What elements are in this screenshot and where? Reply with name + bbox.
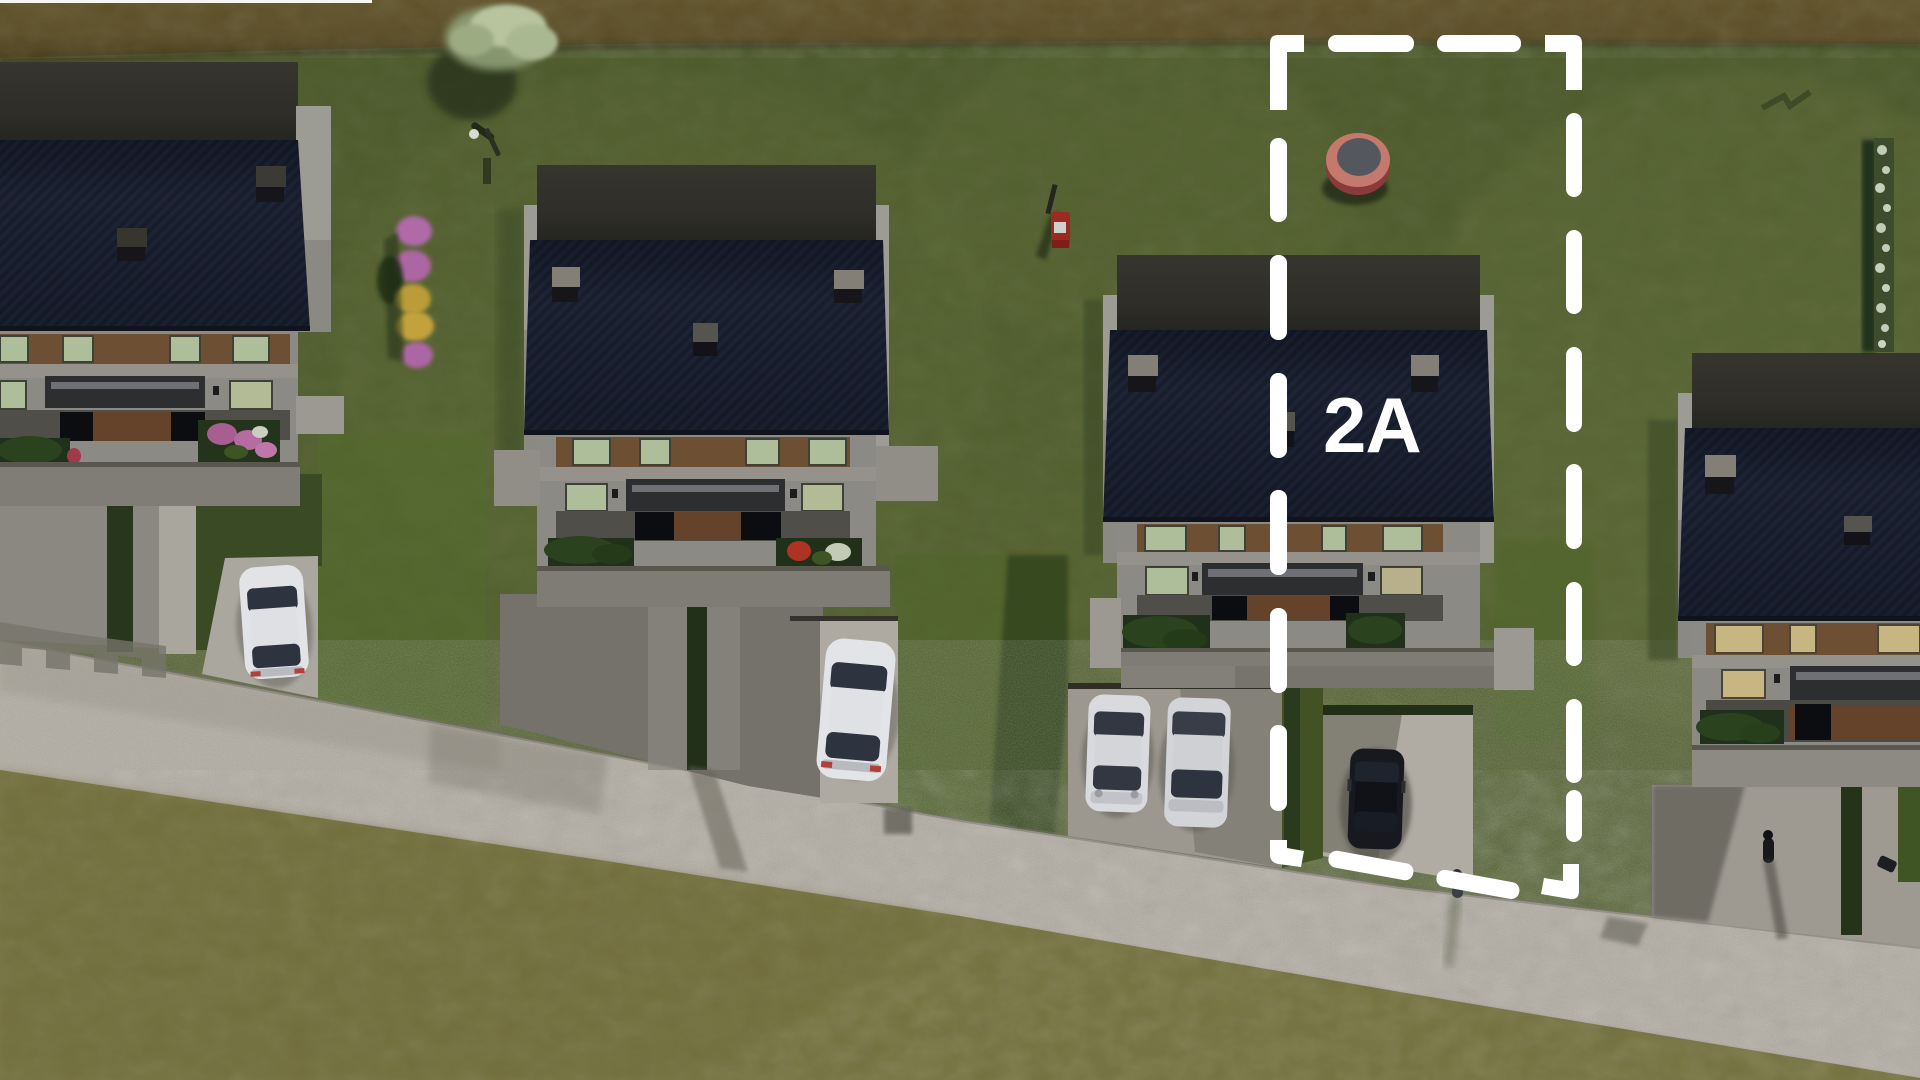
svg-text:2A: 2A — [1323, 381, 1421, 469]
